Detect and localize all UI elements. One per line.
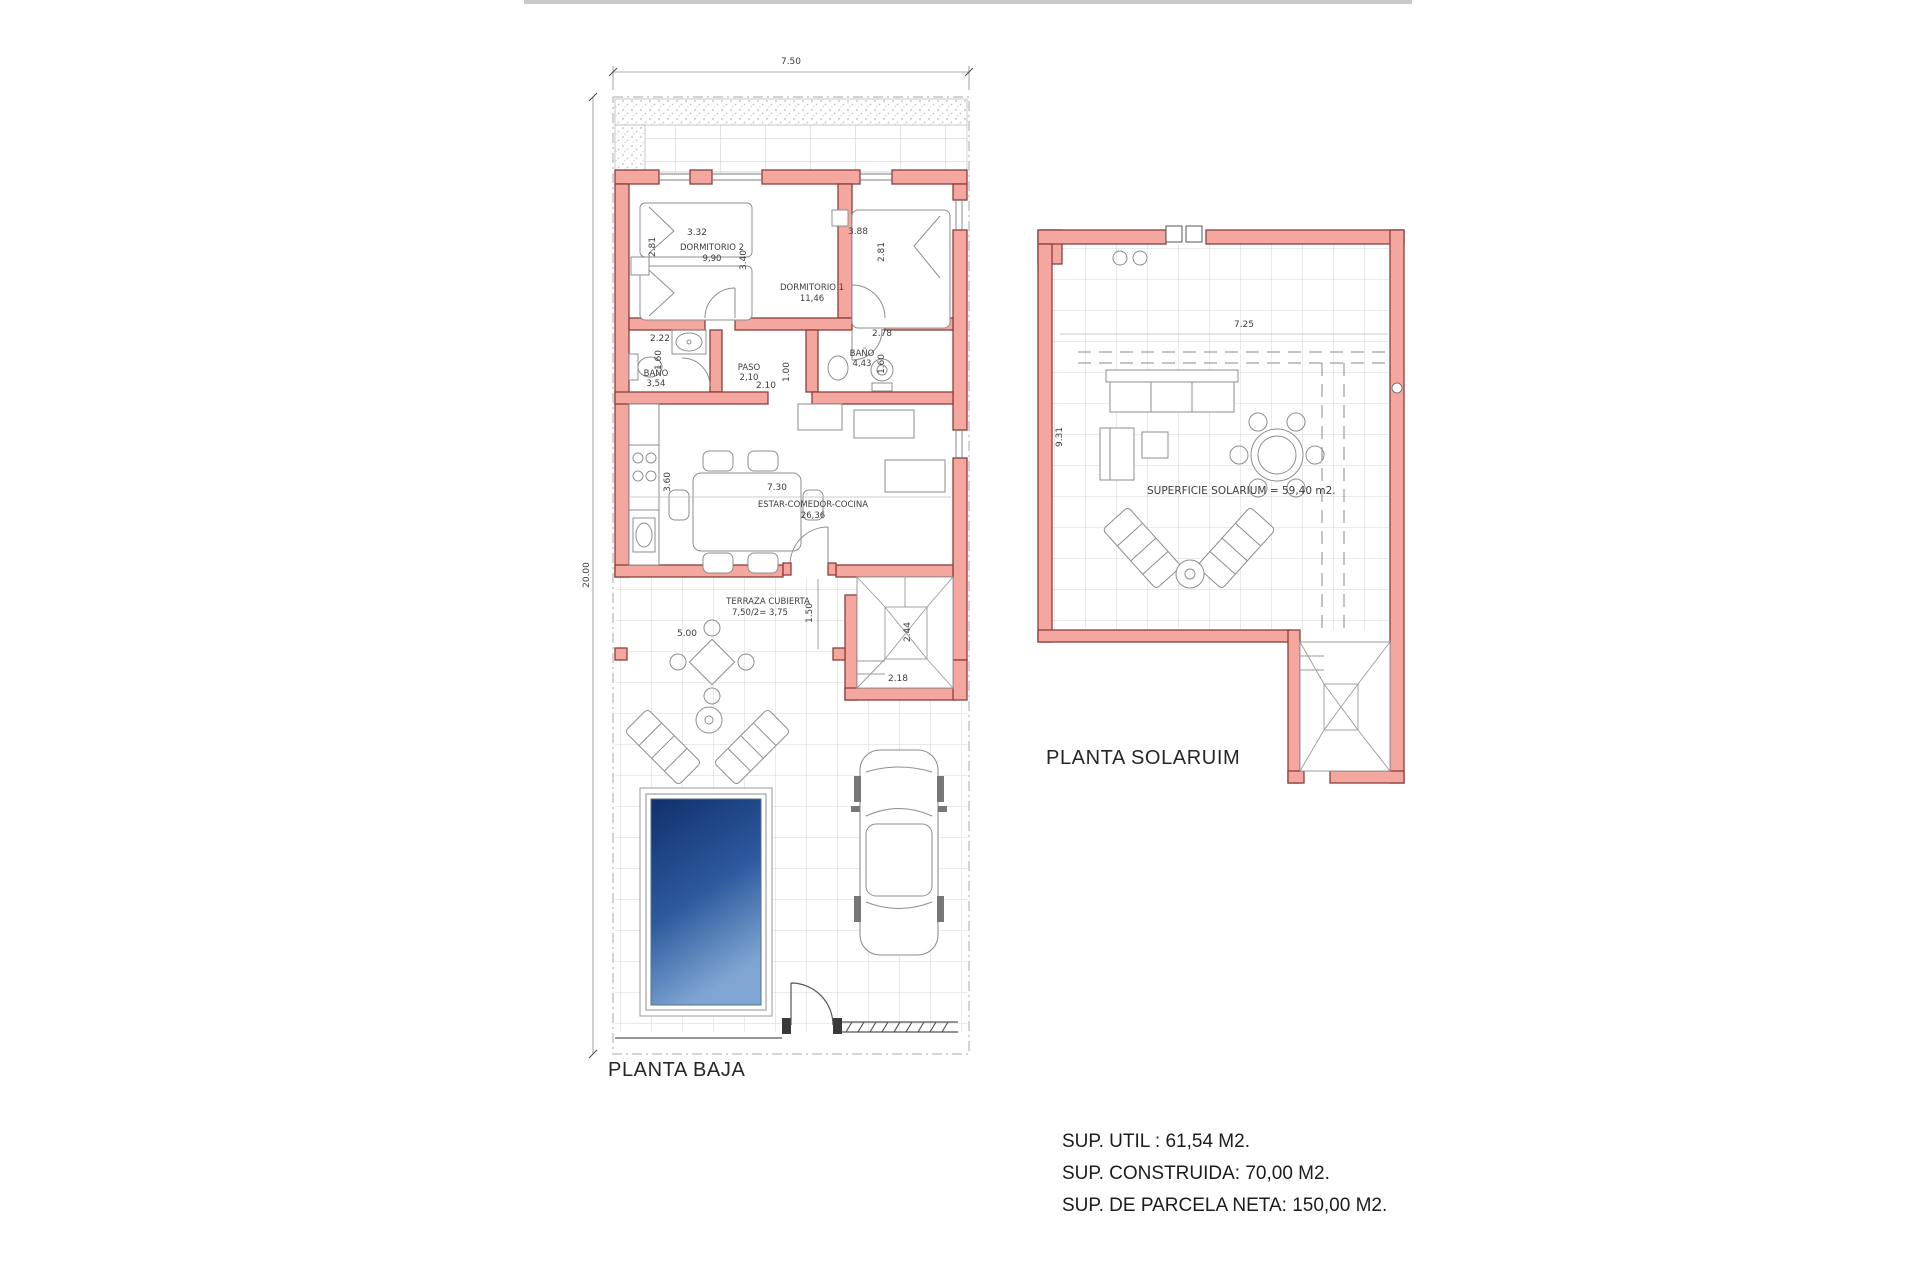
summary-sup-construida: SUP. CONSTRUIDA: 70,00 M2. (1062, 1163, 1330, 1185)
car-top-view (851, 750, 947, 955)
paso-dim-w: 2.10 (756, 381, 776, 391)
dim-total-height-label: 20.00 (582, 562, 592, 588)
planta-solarium-title: PLANTA SOLARUIM (1046, 747, 1240, 770)
planta-baja-plan: 7.50 20.00 (582, 57, 973, 1058)
stairs-solarium (1300, 642, 1390, 771)
terraza-dim-w: 5.00 (677, 629, 697, 639)
pool (640, 788, 772, 1016)
solarium-dim-h: 9.31 (1055, 427, 1065, 447)
bano2-label: BAÑO (850, 348, 875, 359)
dorm1-area: 11,46 (800, 294, 824, 304)
dim-total-width-label: 7.50 (781, 57, 801, 67)
solarium-dim-w: 7.25 (1234, 320, 1254, 330)
bano2-dim-w: 2.78 (872, 329, 892, 339)
stairs-planta-baja: 2.44 2.18 (857, 577, 953, 688)
dorm2-label: DORMITORIO 2 (680, 243, 744, 253)
stairs-dim-h: 2.44 (903, 622, 913, 642)
solarium-surface-label: SUPERFICIE SOLARIUM = 59,40 m2. (1147, 485, 1336, 497)
bano2-dim-h: 1.60 (877, 354, 887, 374)
dorm2-area: 9,90 (703, 254, 722, 264)
dorm1-dim-w: 3.88 (848, 227, 868, 237)
dorm1-dim-h: 2.81 (877, 242, 887, 262)
terraza-dim-h: 1.50 (805, 603, 815, 623)
dorm1-label: DORMITORIO 1 (780, 283, 844, 293)
paso-dim-h: 1.00 (782, 362, 792, 382)
drawing-sheet: 7.50 20.00 (0, 0, 1920, 1280)
stairs-dim-w: 2.18 (888, 674, 908, 684)
front-garden-strip (615, 99, 967, 172)
floor-plan-canvas: 7.50 20.00 (0, 0, 1920, 1280)
estar-dim-h: 3.60 (663, 472, 673, 492)
bano1-area: 3,54 (647, 379, 666, 389)
estar-area: 26,36 (801, 511, 825, 521)
dorm2-dim-w: 3.32 (687, 228, 707, 238)
summary-sup-util: SUP. UTIL : 61,54 M2. (1062, 1131, 1250, 1153)
paso-label: PASO (738, 363, 761, 373)
dim-total-width: 7.50 (609, 57, 973, 90)
bano1-label: BAÑO (644, 368, 669, 379)
planta-solarium-plan: 7.25 9.31 SUPERFICIE SOLARIUM = 59,40 m2… (1038, 226, 1404, 783)
dorm2-dim-h: 2.81 (648, 237, 658, 257)
terraza-area: 7,50/2= 3,75 (732, 608, 788, 618)
bano2-area: 4,43 (853, 359, 872, 369)
bano1-dim-w: 2.22 (650, 334, 670, 344)
planta-baja-title: PLANTA BAJA (608, 1059, 745, 1082)
dorm2-furniture (631, 203, 752, 320)
dorm2-dim-h2: 3.40 (739, 250, 749, 270)
summary-sup-parcela: SUP. DE PARCELA NETA: 150,00 M2. (1062, 1195, 1387, 1217)
estar-label: ESTAR-COMEDOR-COCINA (758, 500, 868, 510)
estar-dim-w: 7.30 (767, 483, 787, 493)
terraza-label: TERRAZA CUBIERTA (725, 597, 810, 607)
bano1-dim-h: 1.60 (654, 350, 664, 370)
dim-total-height: 20.00 (582, 93, 597, 1058)
